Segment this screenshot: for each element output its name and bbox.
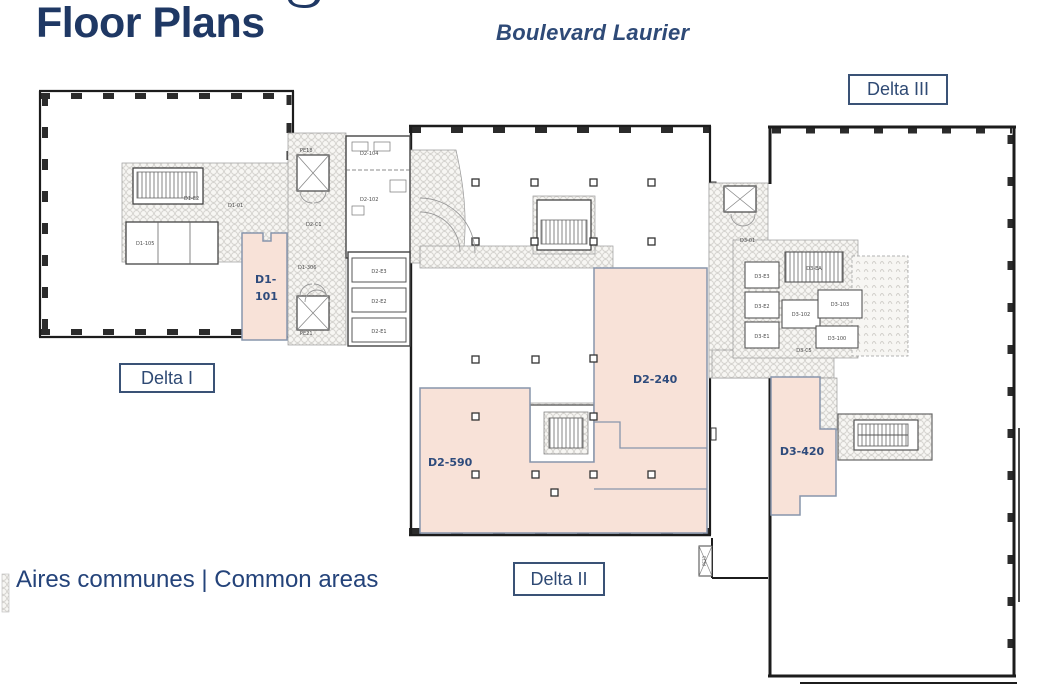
- label-d2-c1: D2-C1: [306, 222, 322, 228]
- page-title: Floor Plans: [36, 0, 265, 47]
- suite-d2-240-label: D2-240: [633, 373, 678, 386]
- suite-d2-590-label: D2-590: [428, 456, 473, 469]
- cropped-text-fragment: [288, 0, 320, 8]
- label-d1-306: D1-306: [298, 265, 316, 271]
- label-pe21: PE21: [300, 331, 313, 337]
- floor-plan-page: PE18 PE21 D1-01 D1-E2 D1-105 D1-306 D2-C…: [0, 0, 1038, 691]
- delta2-delta3-lower-walls: [699, 538, 768, 578]
- label-d2-104: D2-104: [360, 151, 378, 157]
- label-d2-e3: D2-E3: [371, 269, 386, 275]
- label-d2-e1: D2-E1: [371, 329, 386, 335]
- label-d3-c5: D3-C5: [796, 348, 812, 354]
- label-pe18: PE18: [300, 148, 313, 154]
- building-label-delta2: Delta II: [513, 562, 605, 596]
- suite-d1-101-label-line1: D1-: [255, 273, 276, 286]
- building-label-delta1: Delta I: [119, 363, 215, 393]
- building-label-delta3-text: Delta III: [867, 79, 929, 100]
- label-d1-e2: D1-E2: [184, 196, 199, 202]
- label-d3-102: D3-102: [792, 312, 810, 318]
- label-d1-105: D1-105: [136, 241, 154, 247]
- label-pe23: PE23: [702, 556, 707, 566]
- suite-d1-101: [242, 233, 287, 340]
- label-d1-01: D1-01: [228, 203, 243, 209]
- label-d3-ea: D3-EA: [806, 266, 822, 272]
- label-d2-e2: D2-E2: [371, 299, 386, 305]
- common-areas-legend: Aires communes | Common areas: [16, 566, 378, 594]
- label-d3-103: D3-103: [831, 302, 849, 308]
- building-label-delta1-text: Delta I: [141, 368, 193, 389]
- label-d3-e3: D3-E3: [754, 274, 769, 280]
- label-d3-01: D3-01: [740, 238, 755, 244]
- building-label-delta3: Delta III: [848, 74, 948, 105]
- label-d3-100: D3-100: [828, 336, 846, 342]
- delta3-stair-arm: [854, 420, 918, 450]
- suite-d1-101-label-line2: 101: [255, 290, 278, 303]
- label-d3-e1: D3-E1: [754, 334, 769, 340]
- label-d3-e2: D3-E2: [754, 304, 769, 310]
- street-subtitle: Boulevard Laurier: [496, 20, 689, 46]
- suite-d3-420-label: D3-420: [780, 445, 825, 458]
- building-label-delta2-text: Delta II: [530, 569, 587, 590]
- label-d2-102: D2-102: [360, 197, 378, 203]
